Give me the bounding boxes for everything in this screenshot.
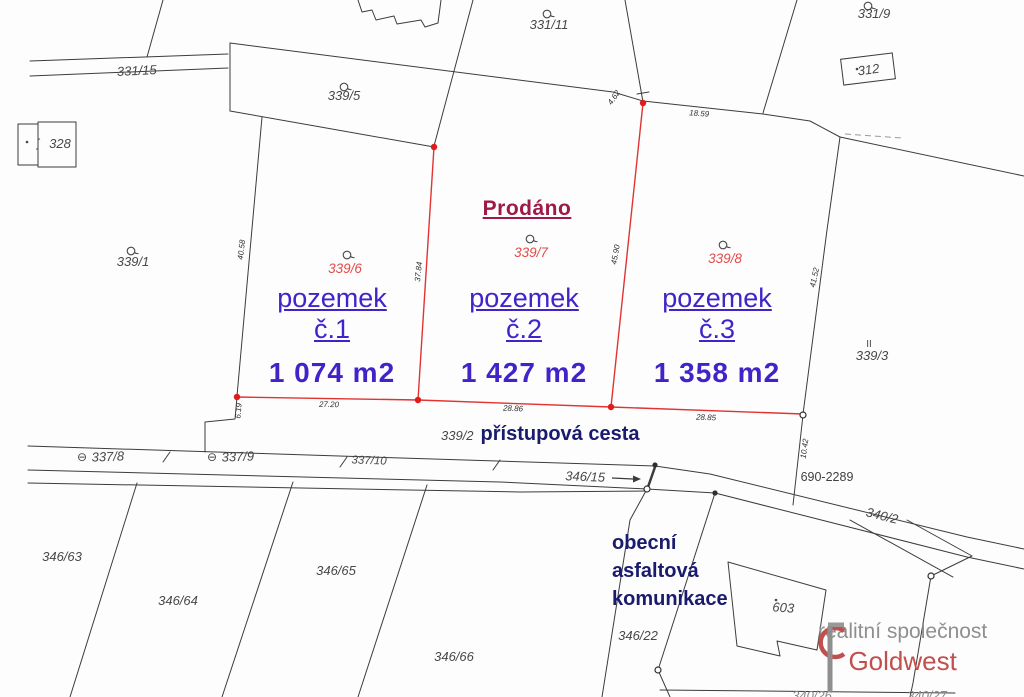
s-mark-icon: ʃ (36, 136, 41, 150)
parcel-label-339-6: 339/6 (328, 261, 362, 276)
building-label-603: 603 (772, 599, 795, 616)
plot-3-area: 1 358 m2 (597, 357, 837, 389)
parcel-label-690-2289: 690-2289 (801, 470, 854, 484)
parcel-label-331-15: 331/15 (117, 62, 158, 79)
parcel-label-339-5: 339/5 (328, 88, 361, 103)
agency-watermark: realitní společnost Goldwest (813, 620, 987, 677)
parcel-label-339-1: 339/1 (117, 254, 150, 269)
building-label-312: 312 (857, 61, 881, 79)
parcel-label-339-7: 339/7 (514, 245, 548, 260)
access-road-parcel: 339/2 (441, 428, 474, 443)
parcel-label-346-15: 346/15 (565, 468, 606, 484)
parcel-label-339-8: 339/8 (708, 251, 742, 266)
theta-icon: ⊖ (77, 450, 87, 464)
access-road-caption: 339/2 přístupová cesta (441, 423, 640, 446)
dimension-label: 37.84 (413, 261, 424, 282)
plot-3-number: č.3 (597, 314, 837, 345)
dimension-label: 28.86 (502, 404, 524, 414)
plot-3-title: pozemek (597, 283, 837, 314)
parcel-label-346-22: 346/22 (618, 628, 659, 643)
theta-icon: ⊖ (207, 450, 217, 464)
parcel-label-346-66: 346/66 (434, 649, 475, 664)
dimension-label: 28.85 (695, 413, 717, 423)
dimension-label: 10.42 (799, 438, 811, 460)
cadastral-map: 331/15 339/5 331/11 331/9 312 ʃ 328 339/… (0, 0, 1024, 697)
parcel-label-337-8: 337/8 (91, 448, 125, 464)
parcel-label-339-3: 339/3 (856, 348, 889, 363)
parcel-label-331-9: 331/9 (858, 6, 891, 21)
parcel-label-337-10: 337/10 (351, 454, 387, 467)
dimension-label: 40.58 (236, 239, 247, 261)
unmeasured-boundary-dashed (845, 134, 902, 138)
parcel-label-340-27: 340/27 (907, 688, 948, 697)
road-note-line1: obecní (612, 529, 728, 557)
parcel-label-337-9: 337/9 (221, 448, 254, 464)
parcel-label-346-63: 346/63 (42, 549, 83, 564)
dimension-label: 6.19 (233, 402, 243, 419)
dimension-label: 18.59 (689, 108, 710, 118)
parcel-label-331-11: 331/11 (530, 17, 569, 32)
plot-3-block: pozemek č.3 1 358 m2 (597, 283, 837, 389)
parcel-label-346-65: 346/65 (316, 563, 357, 578)
building-label-328: 328 (49, 136, 71, 151)
sold-banner: Prodáno (483, 197, 572, 221)
parcel-label-340-2: 340/2 (864, 504, 900, 527)
dimension-label: 45.90 (609, 243, 621, 265)
road-note: obecní asfaltová komunikace (612, 529, 728, 613)
parcel-label-346-64: 346/64 (158, 593, 198, 608)
arrow-right-icon (612, 476, 641, 483)
dimension-label: 27.20 (318, 400, 340, 409)
access-road-name: přístupová cesta (481, 423, 640, 446)
road-note-line3: komunikace (612, 585, 728, 613)
road-note-line2: asfaltová (612, 557, 728, 585)
